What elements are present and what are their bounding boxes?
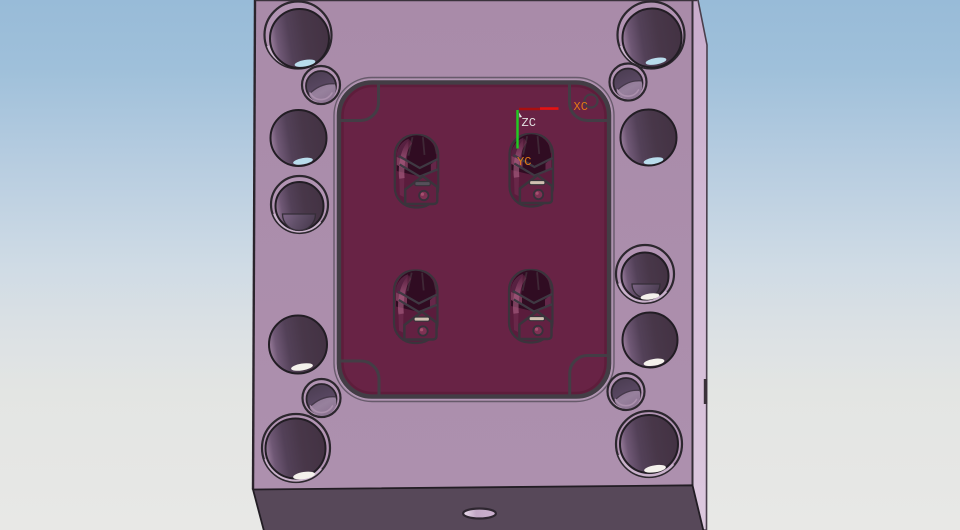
svg-text:XC: XC	[574, 100, 588, 114]
svg-text:YC: YC	[517, 155, 531, 169]
svg-text:ZC: ZC	[522, 116, 536, 130]
